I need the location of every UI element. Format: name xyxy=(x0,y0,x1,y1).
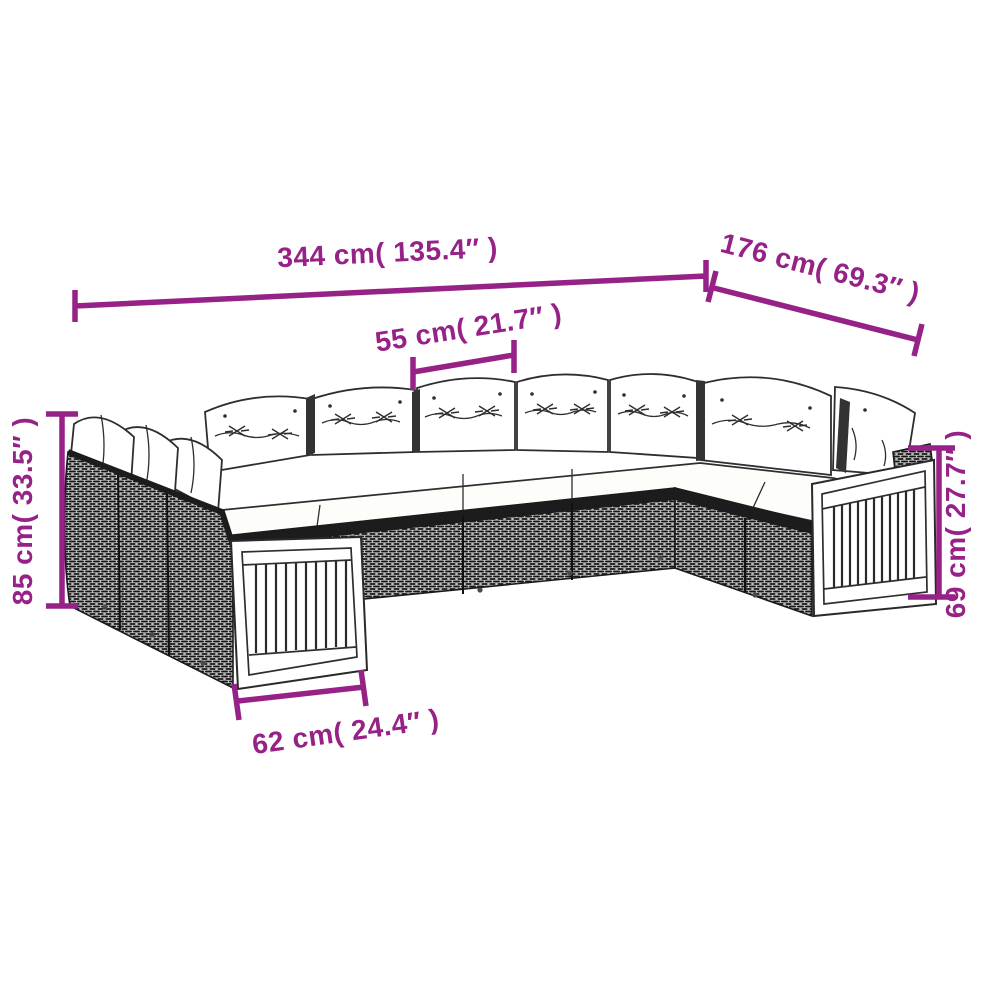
diagram-canvas: 344 cm( 135.4″ ) 176 cm( 69.3″ ) 55 cm( … xyxy=(0,0,1000,1000)
back-cushion xyxy=(517,374,608,452)
dimension-overall-width: 344 cm( 135.4″ ) xyxy=(75,232,706,322)
dimension-label-arm-height: 69 cm( 27.7″ ) xyxy=(940,430,971,619)
right-wood-panel xyxy=(812,460,936,616)
product-dimension-diagram: 344 cm( 135.4″ ) 176 cm( 69.3″ ) 55 cm( … xyxy=(0,0,1000,1000)
left-wood-panel xyxy=(231,537,367,689)
dimension-label-overall-width: 344 cm( 135.4″ ) xyxy=(277,232,499,273)
dimension-label-seat-width: 55 cm( 21.7″ ) xyxy=(373,298,564,358)
dimension-seat-width: 55 cm( 21.7″ ) xyxy=(373,298,564,390)
dimension-label-back-height: 85 cm( 33.5″ ) xyxy=(7,417,38,606)
dimension-line xyxy=(75,260,706,322)
dimension-label-module-depth: 62 cm( 24.4″ ) xyxy=(250,703,441,760)
sofa-illustration xyxy=(64,374,936,689)
dimension-right-depth: 176 cm( 69.3″ ) xyxy=(708,227,923,356)
